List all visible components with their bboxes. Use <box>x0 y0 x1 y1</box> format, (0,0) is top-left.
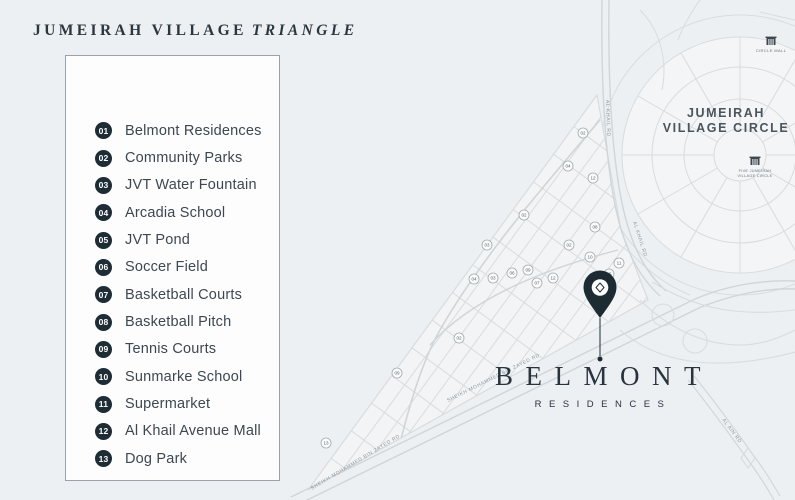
legend-item-number: 12 <box>95 423 112 440</box>
map-marker-02[interactable]: 02 <box>519 210 529 220</box>
map-marker-number: 11 <box>617 261 622 266</box>
legend-item-number: 03 <box>95 177 112 194</box>
map-marker-number: 12 <box>590 176 596 181</box>
legend-item-number: 02 <box>95 150 112 167</box>
legend-item-arcadia-school[interactable]: 04Arcadia School <box>66 199 279 226</box>
map-marker-04[interactable]: 04 <box>563 161 573 171</box>
belmont-callout: BELMONT RESIDENCES <box>495 361 713 410</box>
svg-text:JUMEIRAH: JUMEIRAH <box>687 106 765 120</box>
legend-item-number: 11 <box>95 396 112 413</box>
legend-item-label: Tennis Courts <box>125 341 216 357</box>
page-title-main: JUMEIRAH VILLAGE <box>33 22 247 39</box>
legend-item-label: Supermarket <box>125 396 210 412</box>
svg-text:VILLAGE CIRCLE: VILLAGE CIRCLE <box>737 174 772 178</box>
map-marker-number: 02 <box>521 213 527 218</box>
map-marker-03[interactable]: 03 <box>488 273 498 283</box>
map-marker-12[interactable]: 12 <box>548 273 558 283</box>
legend-item-label: JVT Pond <box>125 232 190 248</box>
legend-item-belmont-residences[interactable]: 01Belmont Residences <box>66 117 279 144</box>
legend-item-supermarket[interactable]: 11Supermarket <box>66 390 279 417</box>
map-marker-07[interactable]: 07 <box>532 278 542 288</box>
legend-item-number: 10 <box>95 368 112 385</box>
map-marker-06[interactable]: 06 <box>507 268 517 278</box>
legend-item-label: Community Parks <box>125 150 242 166</box>
legend-list: 01Belmont Residences02Community Parks03J… <box>66 56 279 472</box>
map-marker-number: 10 <box>587 255 593 260</box>
legend-item-number: 13 <box>95 450 112 467</box>
legend-item-al-khail-avenue-mall[interactable]: 12Al Khail Avenue Mall <box>66 418 279 445</box>
map-marker-number: 04 <box>471 277 477 282</box>
legend-item-basketball-courts[interactable]: 07Basketball Courts <box>66 281 279 308</box>
road-label-al-khail-1: AL KHAIL RD <box>604 100 611 137</box>
map-marker-number: 08 <box>592 225 598 230</box>
legend-item-community-parks[interactable]: 02Community Parks <box>66 144 279 171</box>
map-marker-number: 04 <box>565 164 571 169</box>
map-marker-number: 09 <box>525 268 531 273</box>
map-marker-number: 13 <box>323 441 329 446</box>
map-marker-09[interactable]: 09 <box>523 265 533 275</box>
belmont-title: BELMONT <box>495 361 713 391</box>
road-label-al-ain: AL AIN RD <box>720 418 742 445</box>
legend-item-label: Dog Park <box>125 451 187 467</box>
legend-panel: 01Belmont Residences02Community Parks03J… <box>65 55 280 481</box>
map-marker-02[interactable]: 02 <box>454 333 464 343</box>
map-marker-12[interactable]: 12 <box>588 173 598 183</box>
map-marker-03[interactable]: 03 <box>482 240 492 250</box>
belmont-subtitle: RESIDENCES <box>535 399 672 410</box>
map-marker-number: 02 <box>456 336 462 341</box>
map-marker-number: 03 <box>484 243 490 248</box>
map-marker-10[interactable]: 10 <box>585 252 595 262</box>
map-marker-number: 09 <box>394 371 400 376</box>
map-marker-number: 12 <box>550 276 556 281</box>
legend-item-soccer-field[interactable]: 06Soccer Field <box>66 254 279 281</box>
map-marker-number: 06 <box>509 271 515 276</box>
map-marker-number: 02 <box>580 131 586 136</box>
svg-text:CIRCLE MALL: CIRCLE MALL <box>756 48 787 53</box>
legend-item-label: JVT Water Fountain <box>125 177 257 193</box>
map-marker-02[interactable]: 02 <box>564 240 574 250</box>
legend-item-number: 07 <box>95 286 112 303</box>
map-marker-11[interactable]: 11 <box>614 258 624 268</box>
legend-item-basketball-pitch[interactable]: 08Basketball Pitch <box>66 308 279 335</box>
page-title-accent: TRIANGLE <box>252 22 358 39</box>
legend-item-tennis-courts[interactable]: 09Tennis Courts <box>66 336 279 363</box>
map-marker-number: 03 <box>490 276 496 281</box>
legend-item-label: Al Khail Avenue Mall <box>125 423 261 439</box>
legend-item-label: Sunmarke School <box>125 369 242 385</box>
legend-item-number: 01 <box>95 122 112 139</box>
legend-item-number: 06 <box>95 259 112 276</box>
building-icon <box>766 37 777 45</box>
map-marker-13[interactable]: 13 <box>321 438 331 448</box>
legend-item-jvt-water-fountain[interactable]: 03JVT Water Fountain <box>66 172 279 199</box>
legend-item-label: Belmont Residences <box>125 123 262 139</box>
map-marker-number: 02 <box>566 243 572 248</box>
map-marker-08[interactable]: 08 <box>590 222 600 232</box>
legend-item-label: Basketball Pitch <box>125 314 231 330</box>
legend-item-number: 05 <box>95 232 112 249</box>
legend-item-label: Basketball Courts <box>125 287 242 303</box>
building-icon <box>750 157 761 165</box>
page: { "header": { "title_main": "JUMEIRAH VI… <box>0 0 795 500</box>
legend-item-number: 09 <box>95 341 112 358</box>
legend-item-label: Arcadia School <box>125 205 225 221</box>
svg-text:VILLAGE CIRCLE: VILLAGE CIRCLE <box>663 121 790 135</box>
map-marker-09[interactable]: 09 <box>392 368 402 378</box>
map-marker-number: 07 <box>534 281 540 286</box>
legend-item-jvt-pond[interactable]: 05JVT Pond <box>66 226 279 253</box>
legend-item-sunmarke-school[interactable]: 10Sunmarke School <box>66 363 279 390</box>
svg-text:FIVE JUMEIRAH: FIVE JUMEIRAH <box>739 169 772 173</box>
page-title: JUMEIRAH VILLAGETRIANGLE <box>33 22 357 40</box>
map-marker-04[interactable]: 04 <box>469 274 479 284</box>
legend-item-number: 08 <box>95 314 112 331</box>
legend-item-dog-park[interactable]: 13Dog Park <box>66 445 279 472</box>
legend-item-label: Soccer Field <box>125 259 208 275</box>
map-marker-02[interactable]: 02 <box>578 128 588 138</box>
legend-item-number: 04 <box>95 204 112 221</box>
